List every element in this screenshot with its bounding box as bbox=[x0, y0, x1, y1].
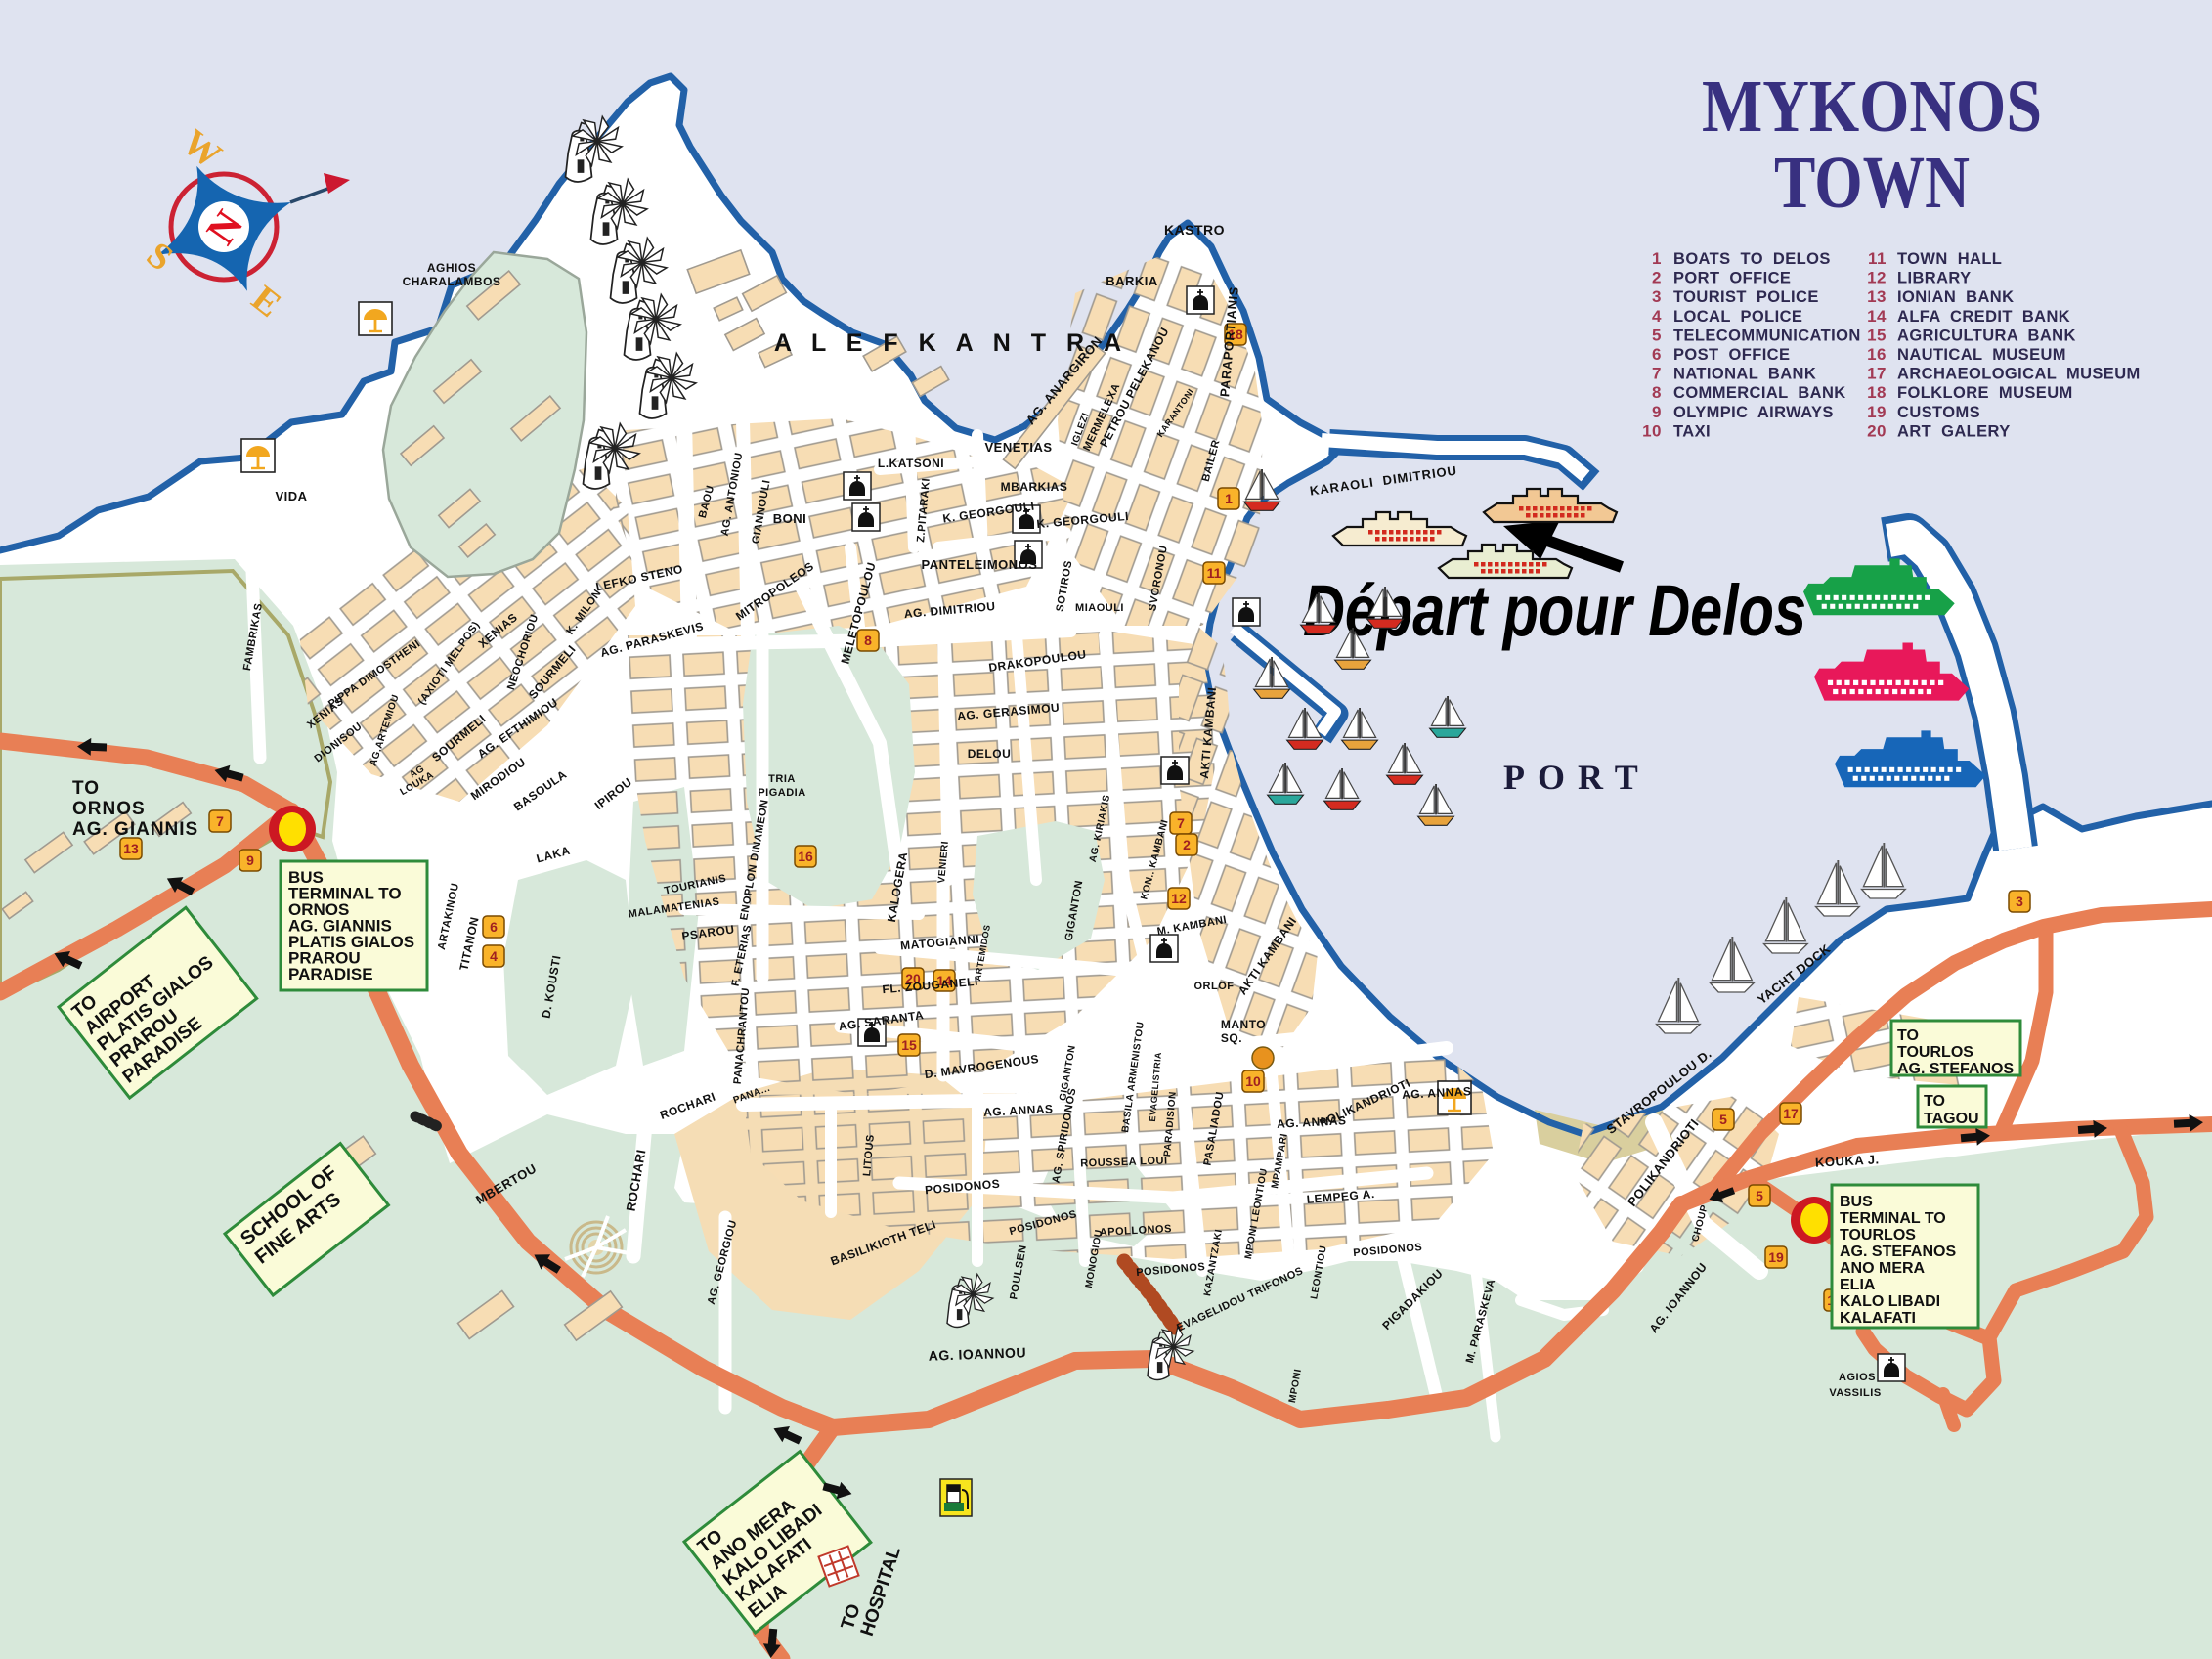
svg-text:NAUTICAL MUSEUM: NAUTICAL MUSEUM bbox=[1897, 346, 2066, 364]
svg-text:PARADISE: PARADISE bbox=[288, 965, 373, 983]
svg-text:VASSILIS: VASSILIS bbox=[1829, 1387, 1881, 1399]
svg-text:11: 11 bbox=[1207, 565, 1222, 581]
svg-text:2: 2 bbox=[1183, 837, 1191, 852]
svg-text:AG. STEFANOS: AG. STEFANOS bbox=[1897, 1061, 2014, 1077]
svg-text:4: 4 bbox=[1652, 307, 1662, 326]
svg-text:BONI: BONI bbox=[773, 511, 807, 526]
svg-text:PORT: PORT bbox=[1503, 758, 1651, 797]
svg-text:TOURLOS: TOURLOS bbox=[1840, 1227, 1916, 1244]
svg-text:VIDA: VIDA bbox=[275, 489, 307, 503]
svg-text:10: 10 bbox=[1642, 421, 1662, 440]
svg-text:MBARKIAS: MBARKIAS bbox=[1001, 480, 1068, 494]
svg-text:4: 4 bbox=[490, 948, 498, 964]
svg-text:KALAFATI: KALAFATI bbox=[1840, 1310, 1916, 1327]
svg-text:MANTO: MANTO bbox=[1221, 1018, 1266, 1031]
svg-text:TOURLOS: TOURLOS bbox=[1897, 1044, 1973, 1061]
svg-text:VENETIAS: VENETIAS bbox=[984, 440, 1052, 455]
svg-text:ORNOS: ORNOS bbox=[72, 799, 146, 819]
svg-text:19: 19 bbox=[1768, 1249, 1784, 1265]
svg-text:3: 3 bbox=[2016, 894, 2023, 909]
svg-text:3: 3 bbox=[1652, 287, 1662, 306]
svg-text:TAGOU: TAGOU bbox=[1924, 1111, 1979, 1127]
svg-text:MYKONOS: MYKONOS bbox=[1702, 65, 2042, 148]
svg-text:16: 16 bbox=[798, 849, 813, 864]
svg-text:10: 10 bbox=[1245, 1073, 1261, 1089]
svg-text:TO: TO bbox=[1924, 1093, 1945, 1110]
svg-text:18: 18 bbox=[1867, 383, 1887, 402]
svg-text:LOCAL POLICE: LOCAL POLICE bbox=[1673, 308, 1802, 326]
svg-text:LIBRARY: LIBRARY bbox=[1897, 270, 1972, 287]
svg-text:7: 7 bbox=[1652, 365, 1662, 383]
svg-text:ELIA: ELIA bbox=[1840, 1277, 1876, 1293]
svg-text:FOLKLORE MUSEUM: FOLKLORE MUSEUM bbox=[1897, 384, 2073, 402]
svg-text:14: 14 bbox=[1867, 307, 1887, 326]
svg-text:5: 5 bbox=[1756, 1188, 1763, 1203]
svg-text:19: 19 bbox=[1867, 403, 1887, 421]
svg-text:TOWN: TOWN bbox=[1774, 142, 1970, 224]
svg-text:ALFA CREDIT BANK: ALFA CREDIT BANK bbox=[1897, 308, 2070, 326]
svg-text:TELECOMMUNICATION: TELECOMMUNICATION bbox=[1673, 327, 1861, 344]
svg-text:AG. GIANNIS: AG. GIANNIS bbox=[72, 819, 198, 840]
svg-text:2: 2 bbox=[1652, 269, 1662, 287]
svg-text:9: 9 bbox=[1652, 403, 1662, 421]
svg-text:ART GALERY: ART GALERY bbox=[1897, 422, 2011, 440]
svg-text:BUS: BUS bbox=[1840, 1194, 1873, 1210]
svg-text:AGHIOS: AGHIOS bbox=[427, 261, 476, 275]
svg-text:TO: TO bbox=[1897, 1027, 1919, 1044]
svg-text:12: 12 bbox=[1171, 891, 1187, 906]
svg-text:SQ.: SQ. bbox=[1221, 1031, 1242, 1045]
svg-text:BOATS TO DELOS: BOATS TO DELOS bbox=[1673, 250, 1831, 268]
svg-text:ARCHAEOLOGICAL MUSEUM: ARCHAEOLOGICAL MUSEUM bbox=[1897, 366, 2141, 383]
svg-text:8: 8 bbox=[864, 633, 872, 648]
svg-text:MIAOULI: MIAOULI bbox=[1075, 602, 1124, 614]
svg-text:TO: TO bbox=[72, 778, 100, 799]
svg-text:13: 13 bbox=[123, 841, 139, 856]
svg-text:OLYMPIC AIRWAYS: OLYMPIC AIRWAYS bbox=[1673, 404, 1834, 421]
svg-text:TERMINAL TO: TERMINAL TO bbox=[1840, 1210, 1946, 1227]
svg-text:11: 11 bbox=[1868, 249, 1887, 268]
svg-text:7: 7 bbox=[1177, 815, 1185, 831]
svg-text:AGIOS: AGIOS bbox=[1839, 1372, 1876, 1383]
svg-text:AGRICULTURA BANK: AGRICULTURA BANK bbox=[1897, 327, 2076, 344]
svg-text:12: 12 bbox=[1867, 269, 1887, 287]
svg-text:TAXI: TAXI bbox=[1673, 422, 1711, 440]
svg-text:DELOU: DELOU bbox=[968, 747, 1012, 761]
svg-text:9: 9 bbox=[246, 852, 254, 868]
svg-text:ORLOF: ORLOF bbox=[1194, 981, 1235, 992]
svg-text:1: 1 bbox=[1225, 491, 1233, 506]
svg-text:POST OFFICE: POST OFFICE bbox=[1673, 346, 1790, 364]
svg-text:7: 7 bbox=[216, 813, 224, 829]
svg-text:CHARALAMBOS: CHARALAMBOS bbox=[403, 275, 501, 288]
svg-text:ANO MERA: ANO MERA bbox=[1840, 1260, 1926, 1277]
svg-text:TOURIST POLICE: TOURIST POLICE bbox=[1673, 288, 1819, 306]
svg-text:8: 8 bbox=[1652, 383, 1662, 402]
svg-text:A L E F K A N T R A: A L E F K A N T R A bbox=[774, 329, 1128, 357]
svg-text:KASTRO: KASTRO bbox=[1164, 222, 1225, 238]
svg-text:AG. STEFANOS: AG. STEFANOS bbox=[1840, 1244, 1956, 1260]
svg-text:20: 20 bbox=[1867, 421, 1887, 440]
svg-text:NATIONAL BANK: NATIONAL BANK bbox=[1673, 366, 1816, 383]
svg-text:16: 16 bbox=[1867, 345, 1887, 364]
svg-text:6: 6 bbox=[1652, 345, 1662, 364]
svg-text:5: 5 bbox=[1652, 326, 1662, 344]
svg-text:COMMERCIAL BANK: COMMERCIAL BANK bbox=[1673, 384, 1846, 402]
svg-text:15: 15 bbox=[1867, 326, 1887, 344]
svg-text:PANTELEIMONOS: PANTELEIMONOS bbox=[922, 557, 1038, 572]
svg-text:1: 1 bbox=[1652, 249, 1662, 268]
svg-text:17: 17 bbox=[1783, 1106, 1799, 1121]
svg-text:15: 15 bbox=[901, 1037, 917, 1053]
svg-text:TOWN HALL: TOWN HALL bbox=[1897, 250, 2002, 268]
svg-text:5: 5 bbox=[1719, 1112, 1727, 1127]
svg-text:IONIAN BANK: IONIAN BANK bbox=[1897, 288, 2014, 306]
svg-text:TRIA: TRIA bbox=[768, 773, 796, 785]
svg-text:L.KATSONI: L.KATSONI bbox=[878, 457, 944, 470]
svg-text:PIGADIA: PIGADIA bbox=[758, 787, 805, 799]
svg-text:6: 6 bbox=[490, 919, 498, 935]
svg-text:KALO LIBADI: KALO LIBADI bbox=[1840, 1293, 1940, 1310]
svg-text:PORT OFFICE: PORT OFFICE bbox=[1673, 270, 1791, 287]
svg-text:13: 13 bbox=[1867, 287, 1887, 306]
svg-text:17: 17 bbox=[1867, 365, 1887, 383]
svg-text:BARKIA: BARKIA bbox=[1106, 274, 1158, 288]
svg-text:CUSTOMS: CUSTOMS bbox=[1897, 404, 1980, 421]
